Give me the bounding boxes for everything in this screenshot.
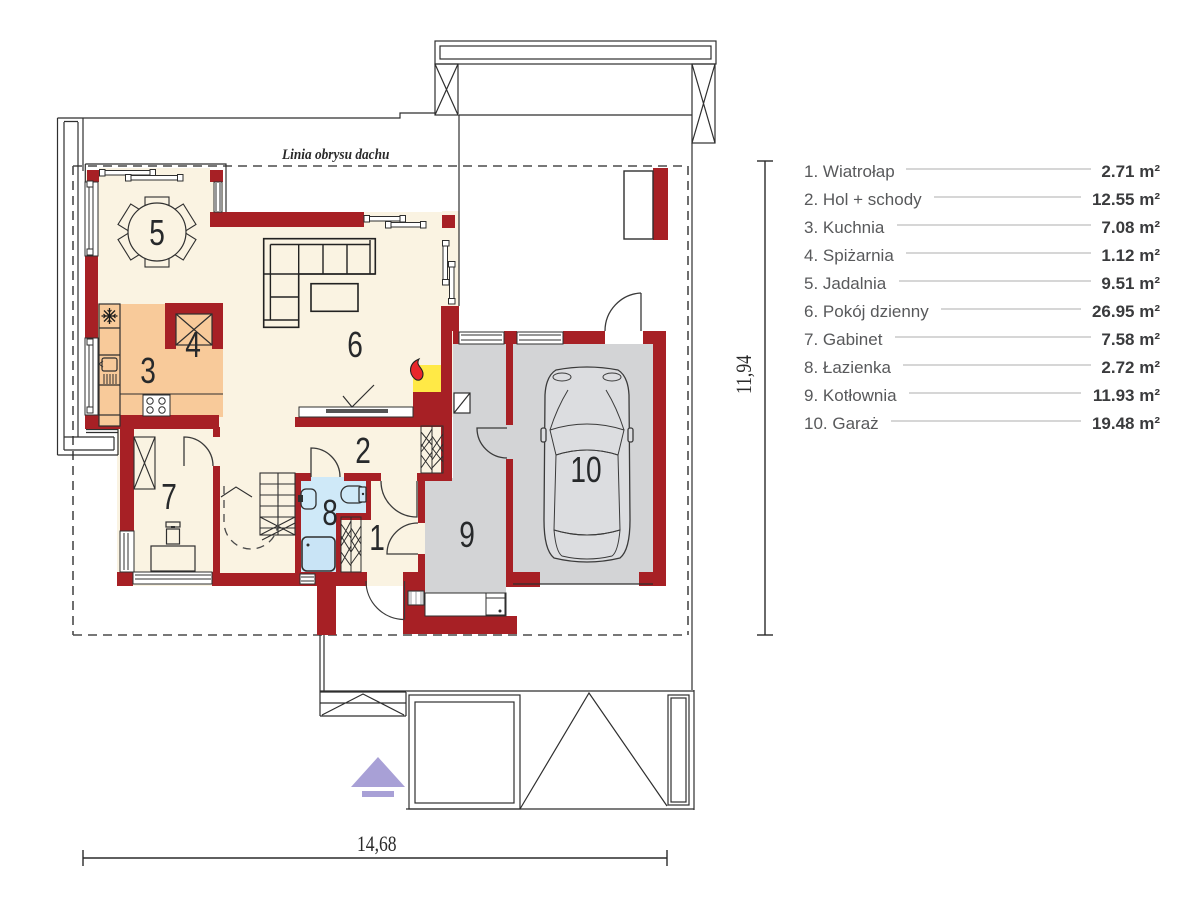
svg-text:7.08 m²: 7.08 m²: [1101, 218, 1160, 237]
svg-text:9. Kotłownia: 9. Kotłownia: [804, 386, 897, 405]
svg-text:4. Spiżarnia: 4. Spiżarnia: [804, 246, 894, 265]
svg-text:6. Pokój dzienny: 6. Pokój dzienny: [804, 302, 929, 321]
svg-text:19.48 m²: 19.48 m²: [1092, 414, 1160, 433]
svg-text:9.51 m²: 9.51 m²: [1101, 274, 1160, 293]
svg-text:7.58 m²: 7.58 m²: [1101, 330, 1160, 349]
svg-text:10: 10: [570, 450, 601, 490]
svg-text:4: 4: [185, 325, 201, 365]
svg-text:8: 8: [322, 493, 338, 533]
svg-text:11,94: 11,94: [732, 355, 756, 394]
svg-text:3. Kuchnia: 3. Kuchnia: [804, 218, 885, 237]
svg-text:10. Garaż: 10. Garaż: [804, 414, 879, 433]
svg-text:Linia obrysu dachu: Linia obrysu dachu: [281, 148, 390, 164]
svg-text:3: 3: [140, 351, 156, 391]
svg-text:5. Jadalnia: 5. Jadalnia: [804, 274, 887, 293]
svg-text:1.12 m²: 1.12 m²: [1101, 246, 1160, 265]
svg-text:6: 6: [347, 325, 363, 365]
svg-text:11.93 m²: 11.93 m²: [1093, 386, 1160, 405]
svg-text:2: 2: [355, 431, 371, 471]
svg-text:8. Łazienka: 8. Łazienka: [804, 358, 891, 377]
svg-text:7. Gabinet: 7. Gabinet: [804, 330, 883, 349]
svg-text:1. Wiatrołap: 1. Wiatrołap: [804, 162, 895, 181]
svg-text:14,68: 14,68: [357, 832, 397, 856]
svg-text:26.95 m²: 26.95 m²: [1092, 302, 1160, 321]
svg-text:5: 5: [149, 213, 165, 253]
svg-text:7: 7: [161, 477, 177, 517]
svg-text:9: 9: [459, 515, 475, 555]
svg-text:2.71 m²: 2.71 m²: [1101, 162, 1160, 181]
svg-text:2.72 m²: 2.72 m²: [1101, 358, 1160, 377]
svg-text:1: 1: [369, 518, 385, 558]
svg-text:2. Hol + schody: 2. Hol + schody: [804, 190, 922, 209]
svg-text:12.55 m²: 12.55 m²: [1092, 190, 1160, 209]
